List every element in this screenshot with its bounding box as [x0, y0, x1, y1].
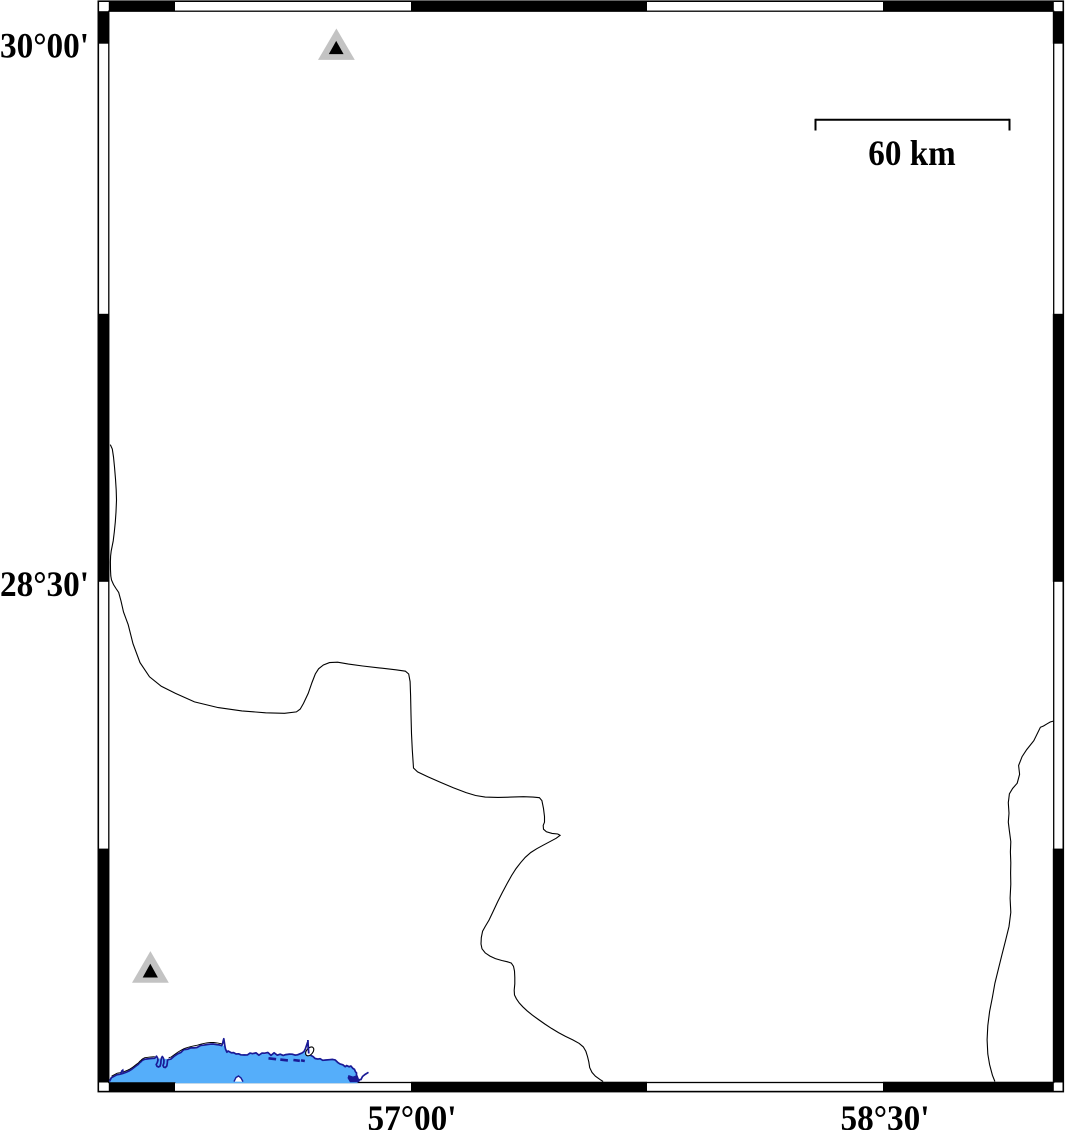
svg-text:30°00': 30°00'	[0, 25, 89, 65]
svg-text:58°30': 58°30'	[841, 1098, 930, 1130]
svg-text:57°00': 57°00'	[368, 1098, 457, 1130]
svg-text:28°30': 28°30'	[0, 564, 89, 604]
svg-text:60 km: 60 km	[868, 133, 955, 173]
